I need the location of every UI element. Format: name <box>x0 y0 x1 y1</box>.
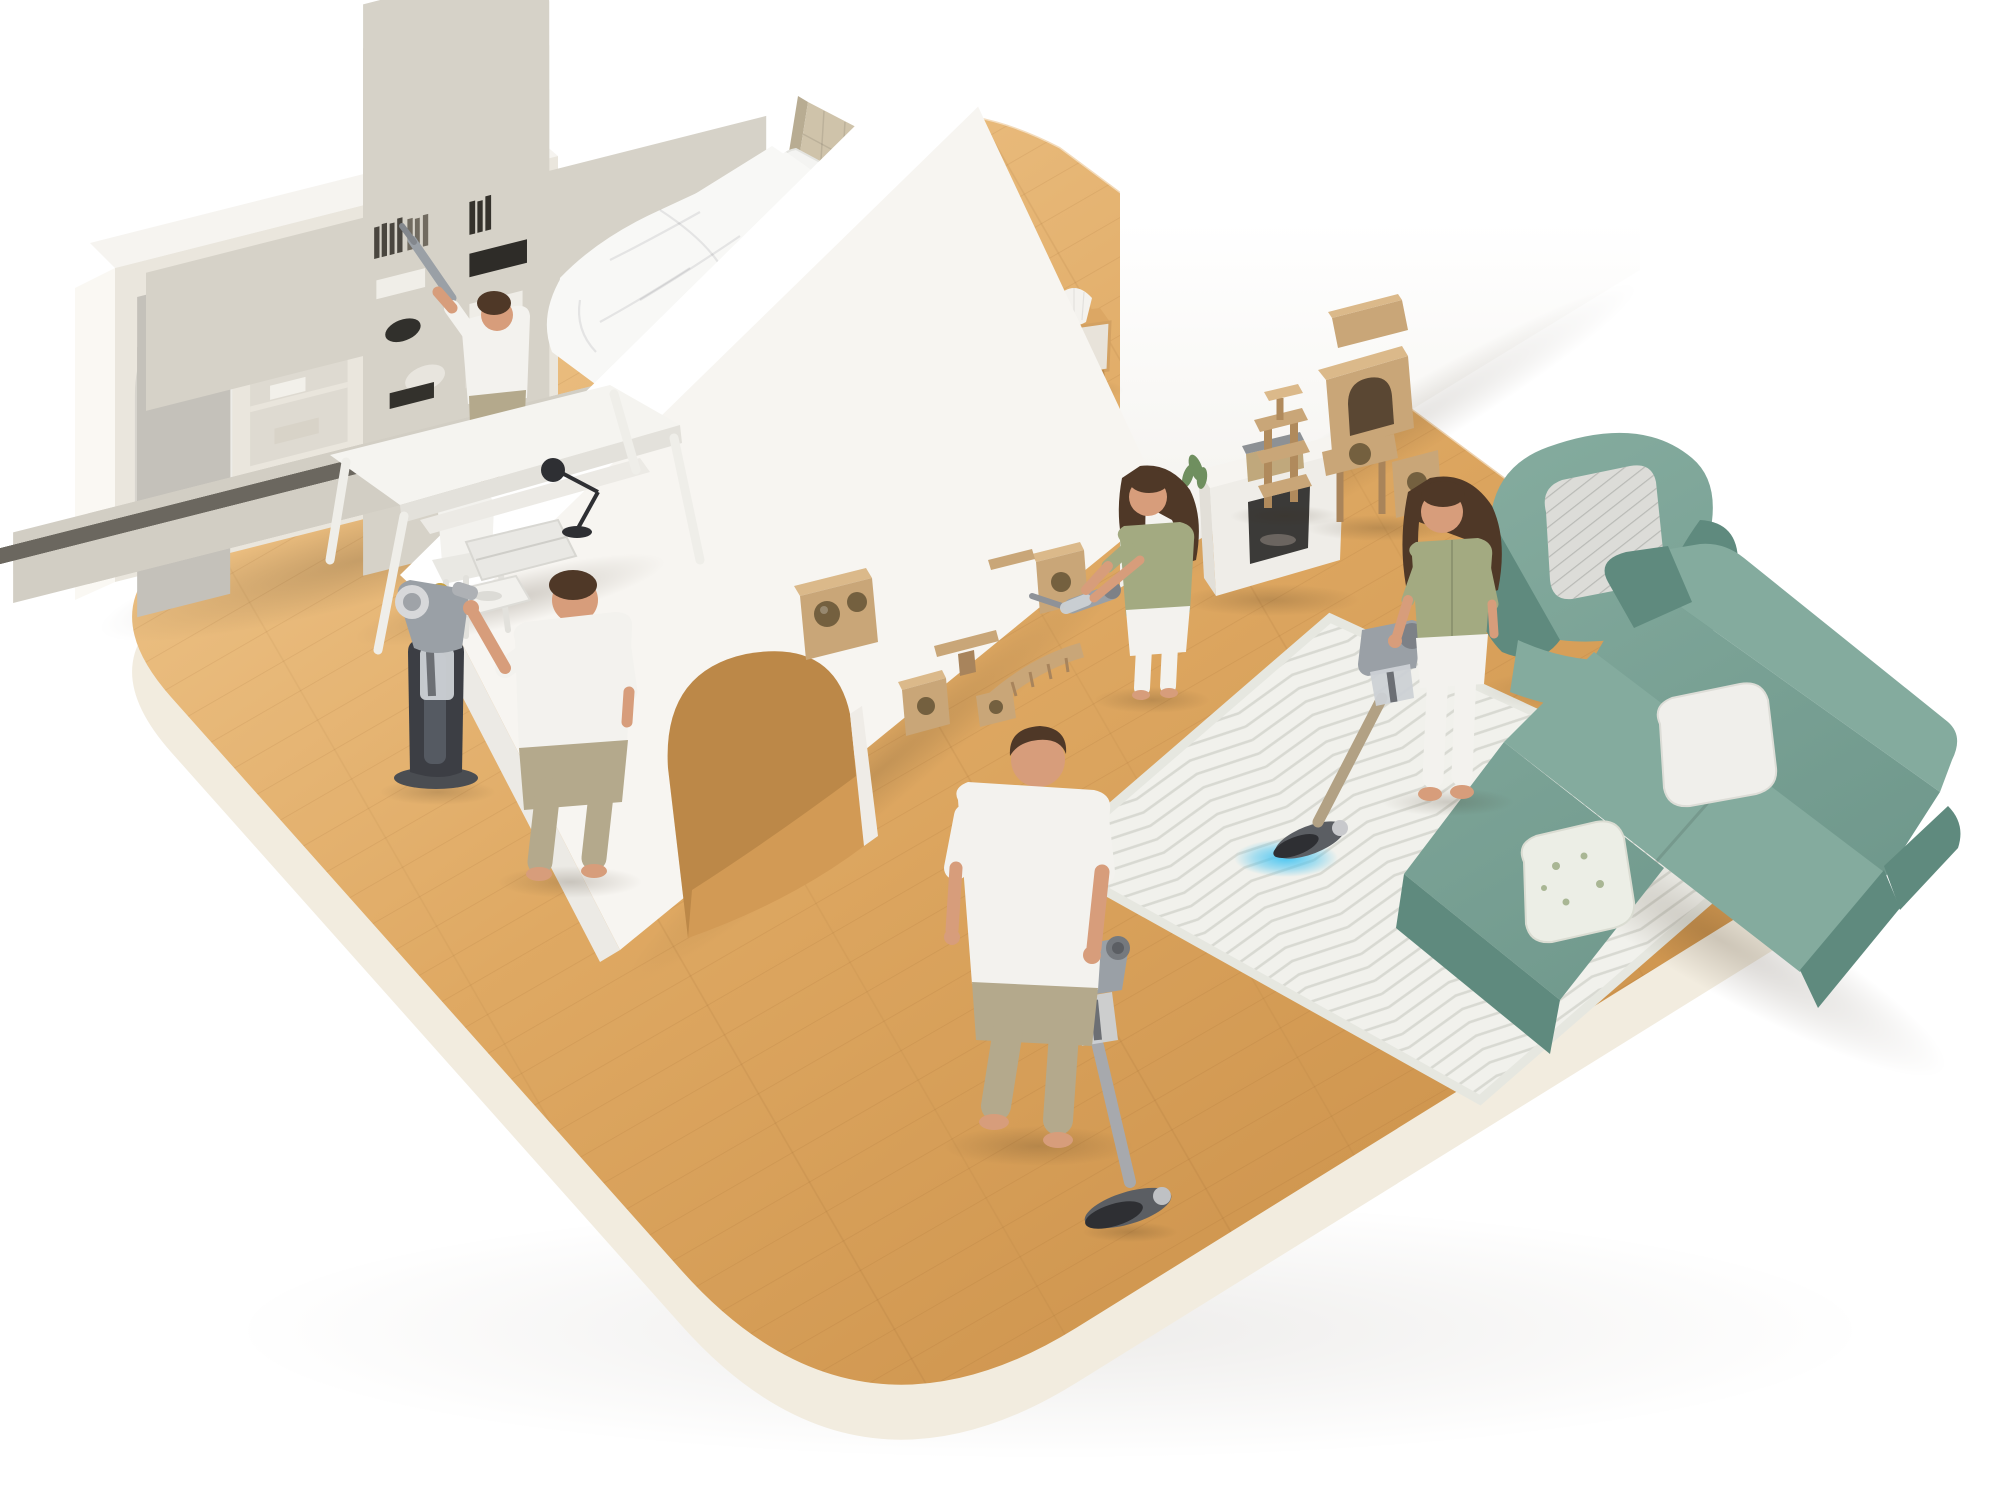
bookshelf-man-hair <box>477 291 511 315</box>
cat-wall-woman-shadow <box>1094 687 1210 713</box>
home-cleaning-illustration <box>0 0 2000 1500</box>
dock-man-shadow <box>498 866 642 898</box>
foreground-man-shadow <box>943 1126 1133 1166</box>
dock-man-torso <box>514 612 632 753</box>
docked-vacuum-bin <box>420 648 454 700</box>
cat-shelf-a-bracket <box>958 650 976 676</box>
sofa-pillow-print <box>1522 821 1634 942</box>
cat-wall-woman-hair <box>1129 469 1169 493</box>
cat-cube-b <box>898 670 950 736</box>
illustration-stage <box>0 0 2000 1500</box>
firebox-logs <box>1260 534 1296 546</box>
dock-man-hair <box>549 570 597 600</box>
carpet-woman-hips <box>1416 634 1488 688</box>
carpet-woman-shadow <box>1382 788 1514 816</box>
sofa-pillow-white <box>1658 683 1776 806</box>
carpet-woman-torso <box>1409 538 1492 644</box>
carpet-woman-hair <box>1421 481 1465 507</box>
foreground-man-hips <box>972 982 1098 1046</box>
desk-lamp-head <box>541 458 565 482</box>
cat-wall-woman-skirt <box>1126 606 1190 656</box>
fireplace-shadow <box>1180 584 1360 616</box>
